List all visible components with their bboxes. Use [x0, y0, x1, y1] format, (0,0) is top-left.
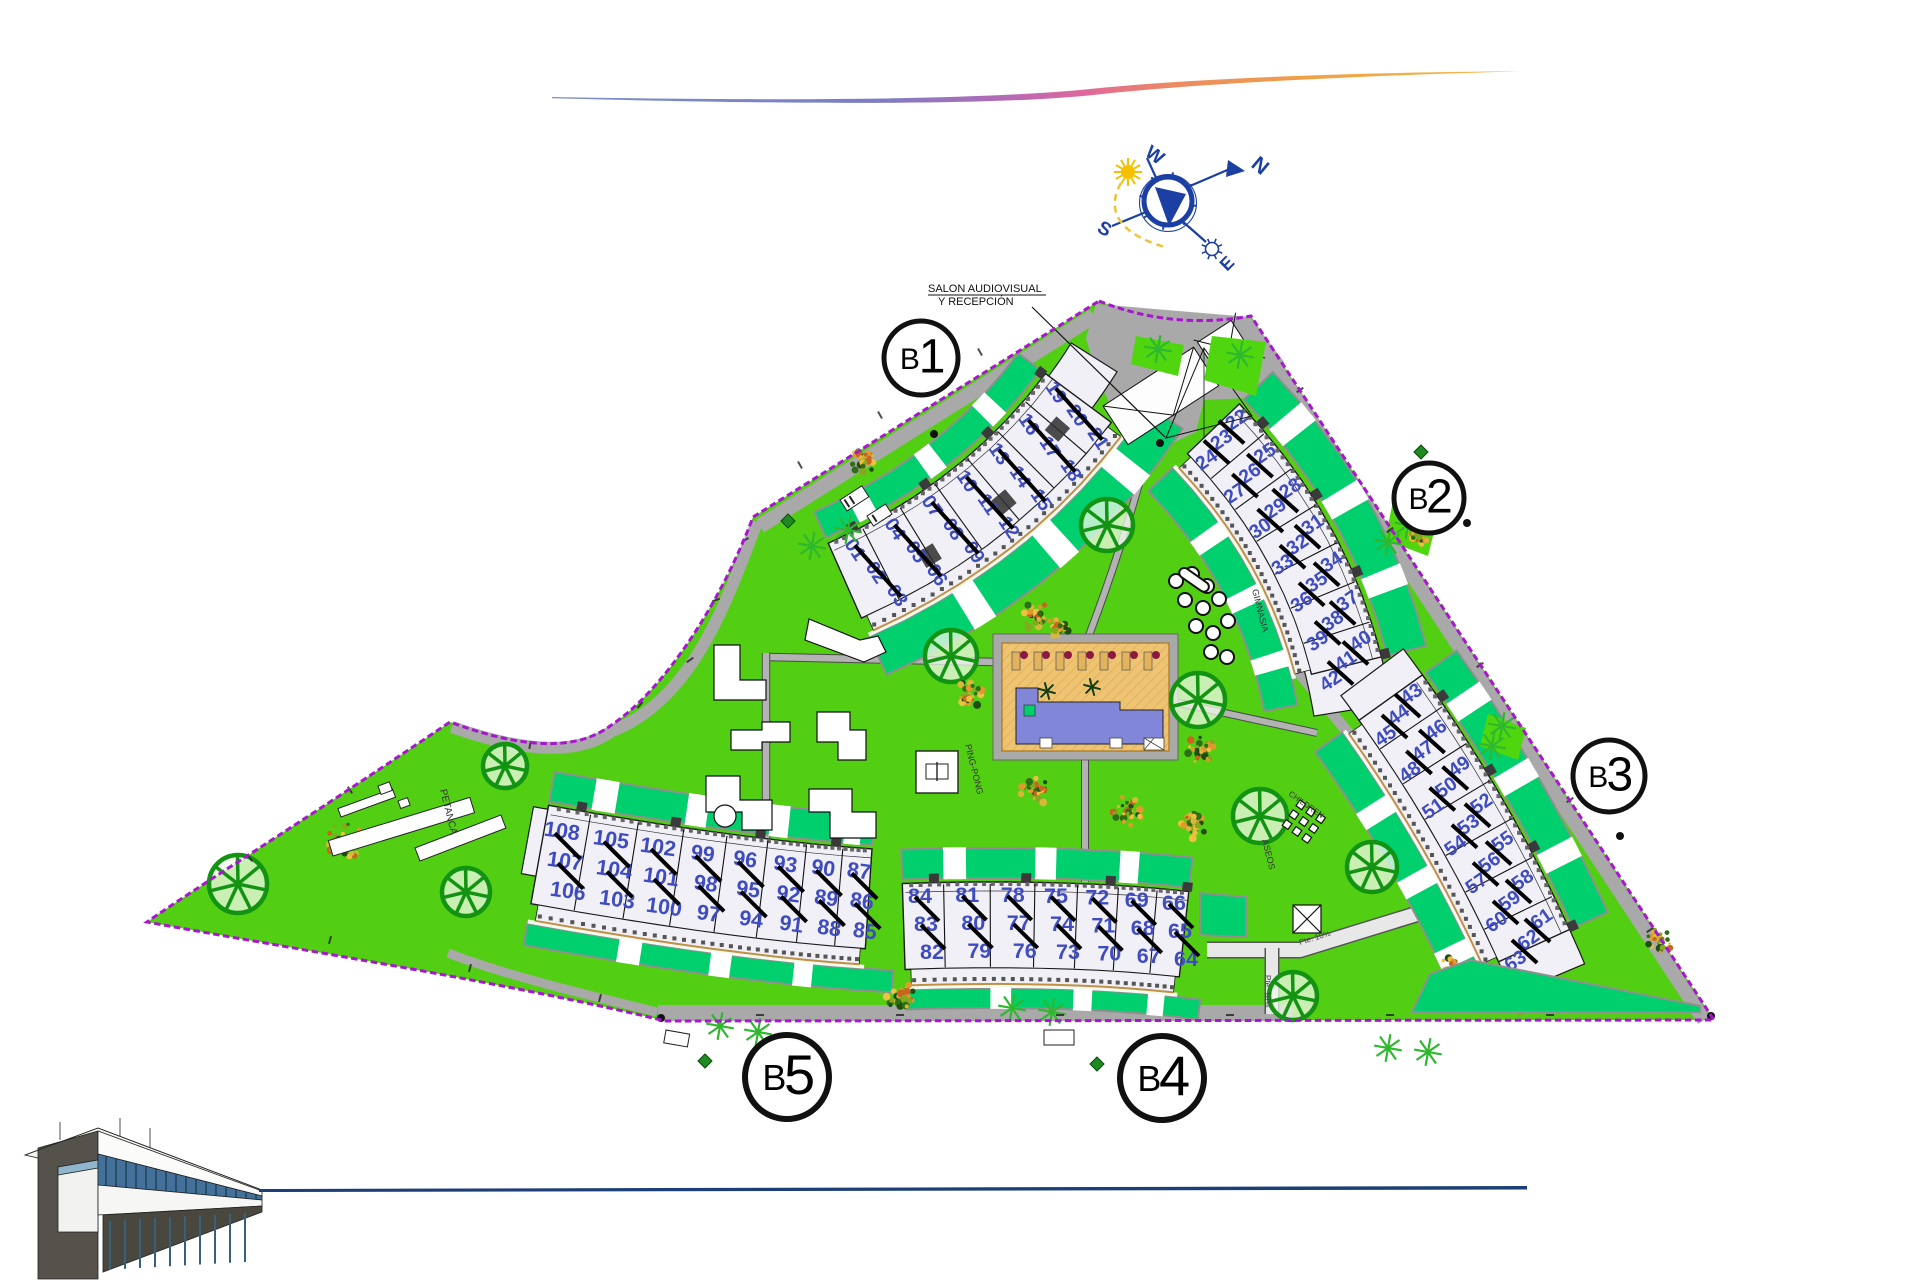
svg-text:100: 100	[645, 893, 684, 922]
svg-text:103: 103	[598, 885, 637, 914]
svg-text:1: 1	[919, 330, 946, 383]
svg-text:B: B	[1588, 761, 1608, 794]
svg-text:B: B	[900, 343, 920, 376]
svg-text:5: 5	[784, 1043, 815, 1106]
svg-text:SALON AUDIOVISUAL: SALON AUDIOVISUAL	[928, 283, 1042, 295]
svg-text:3: 3	[1606, 748, 1633, 801]
svg-text:B: B	[1137, 1058, 1161, 1099]
svg-text:Y RECEPCIÓN: Y RECEPCIÓN	[938, 295, 1014, 308]
svg-text:4: 4	[1159, 1044, 1190, 1107]
svg-text:106: 106	[549, 877, 588, 906]
svg-text:2: 2	[1426, 470, 1453, 523]
svg-text:Pte. 10%: Pte. 10%	[1263, 975, 1272, 1007]
svg-text:B: B	[762, 1057, 786, 1098]
